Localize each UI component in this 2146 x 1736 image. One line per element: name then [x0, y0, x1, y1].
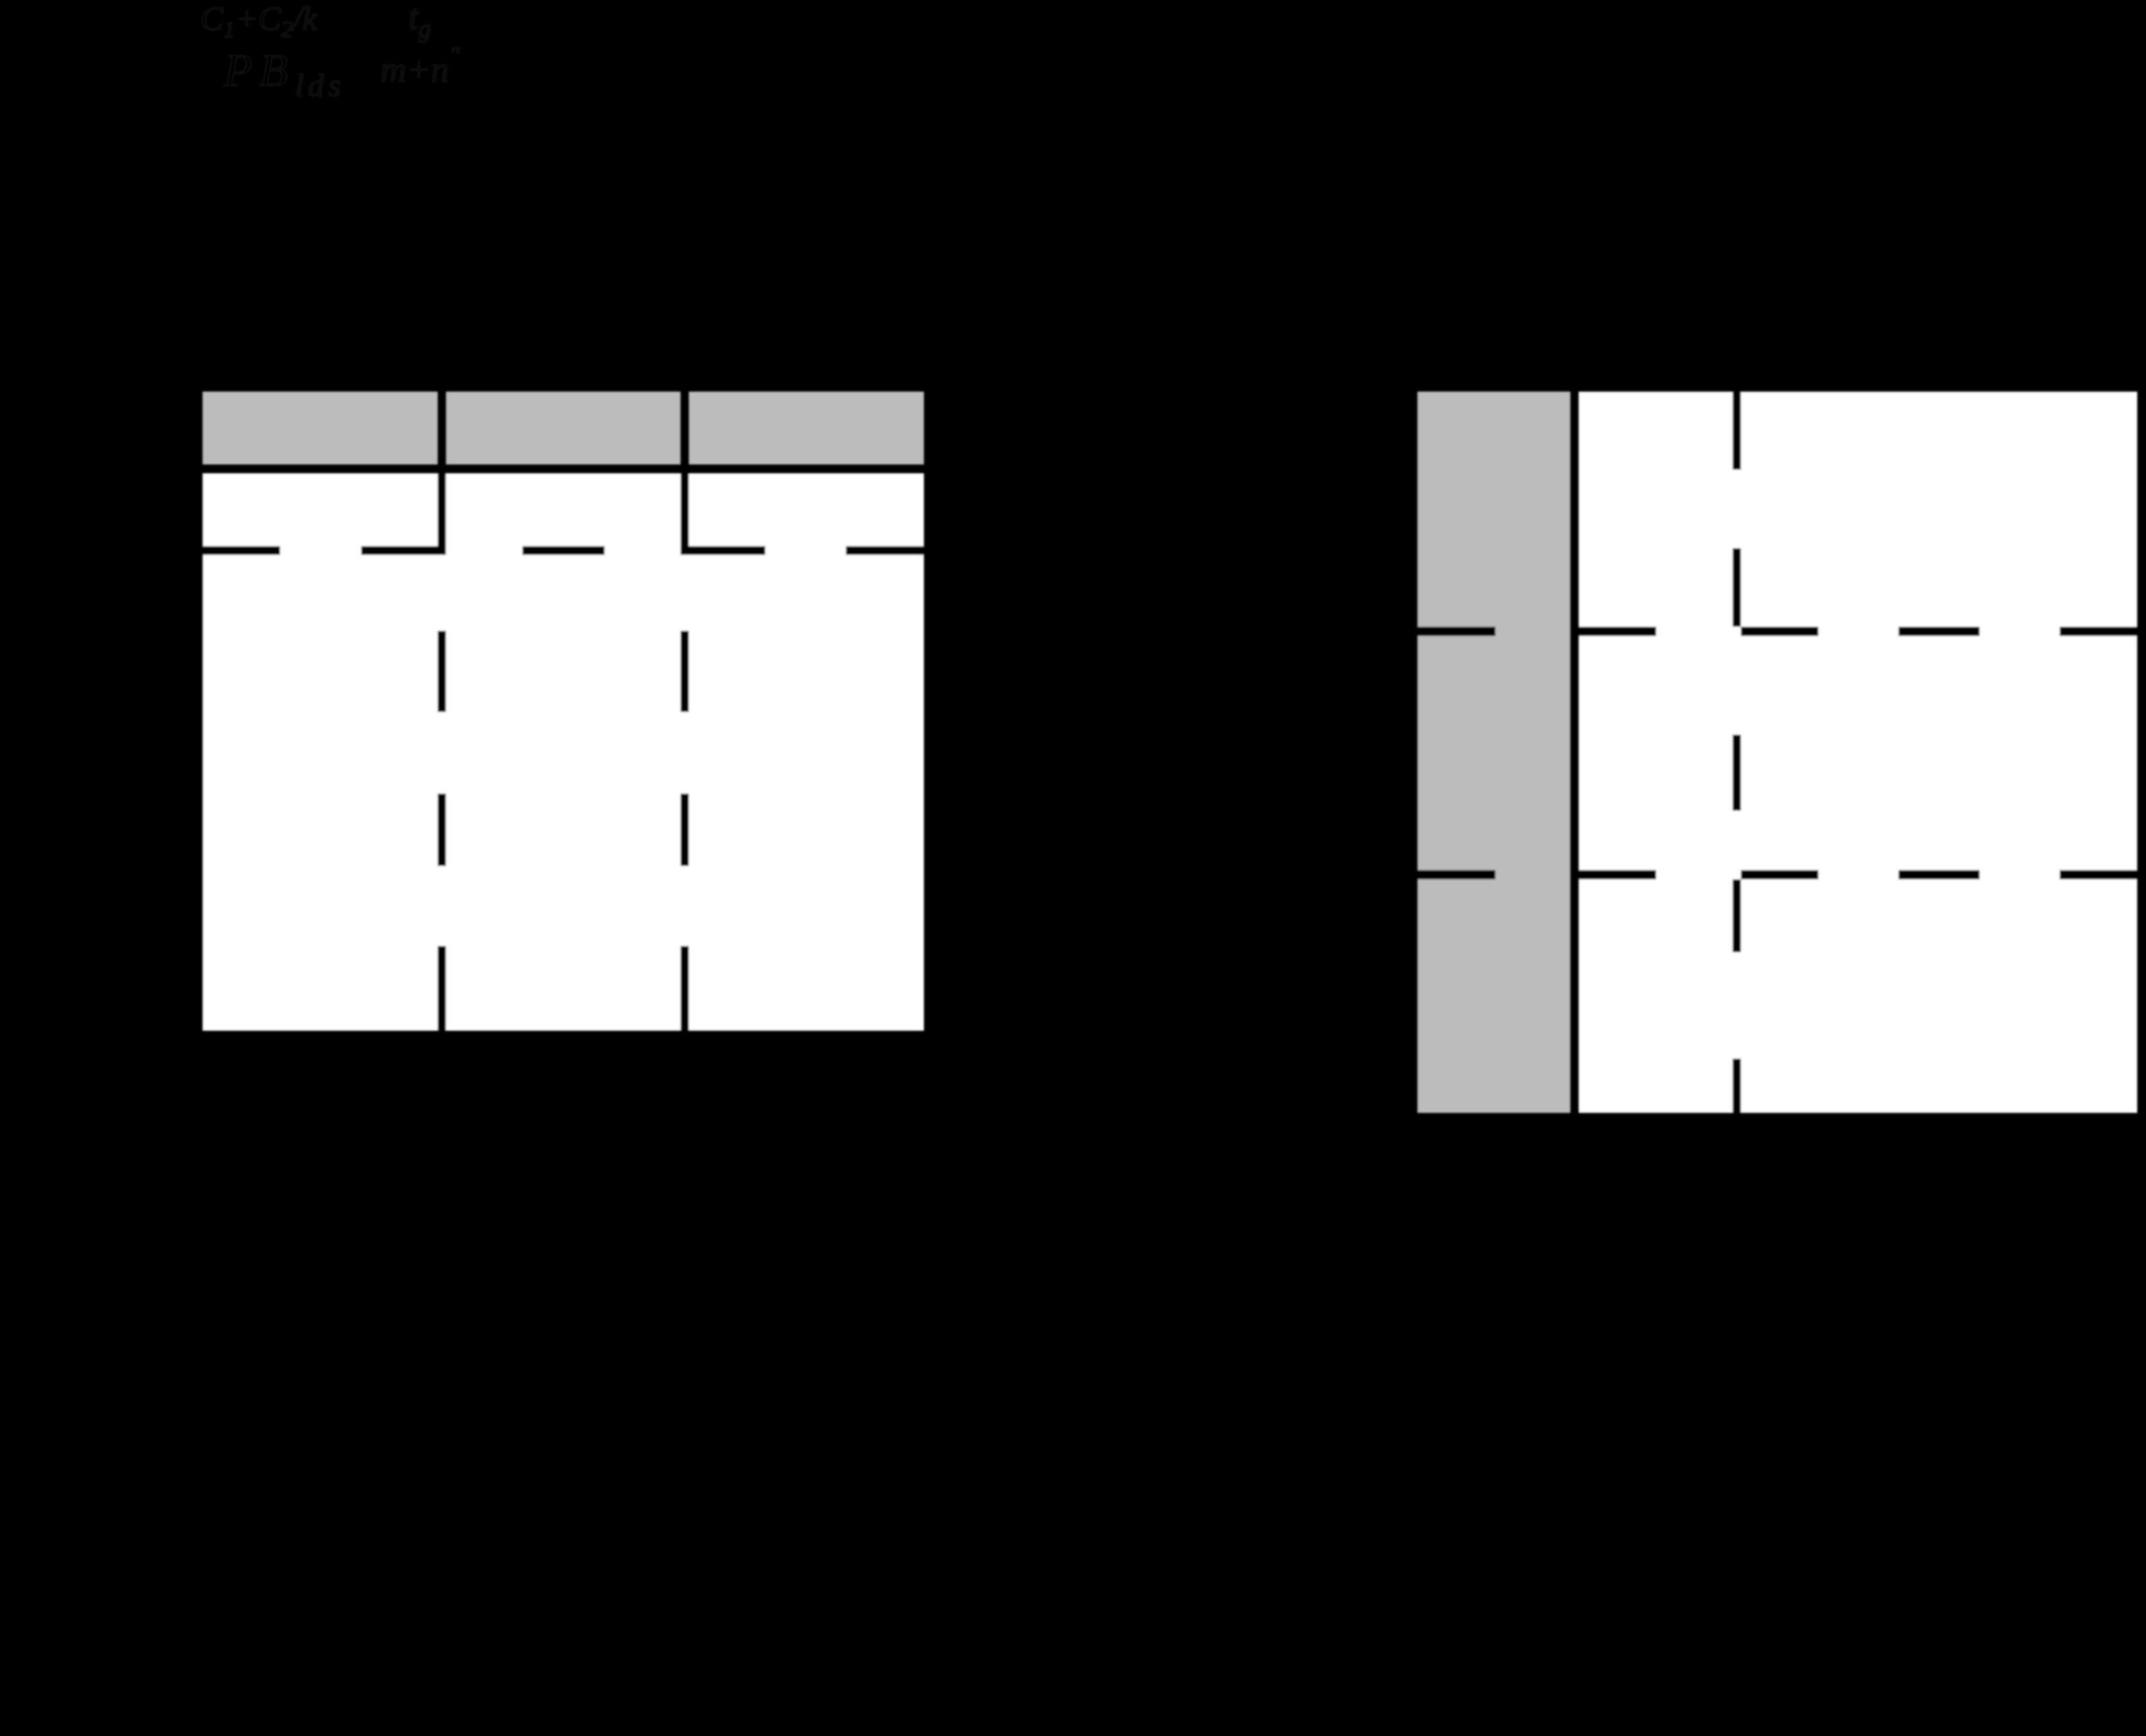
svg-text:C1+C2/k: C1+C2/k [200, 0, 318, 42]
